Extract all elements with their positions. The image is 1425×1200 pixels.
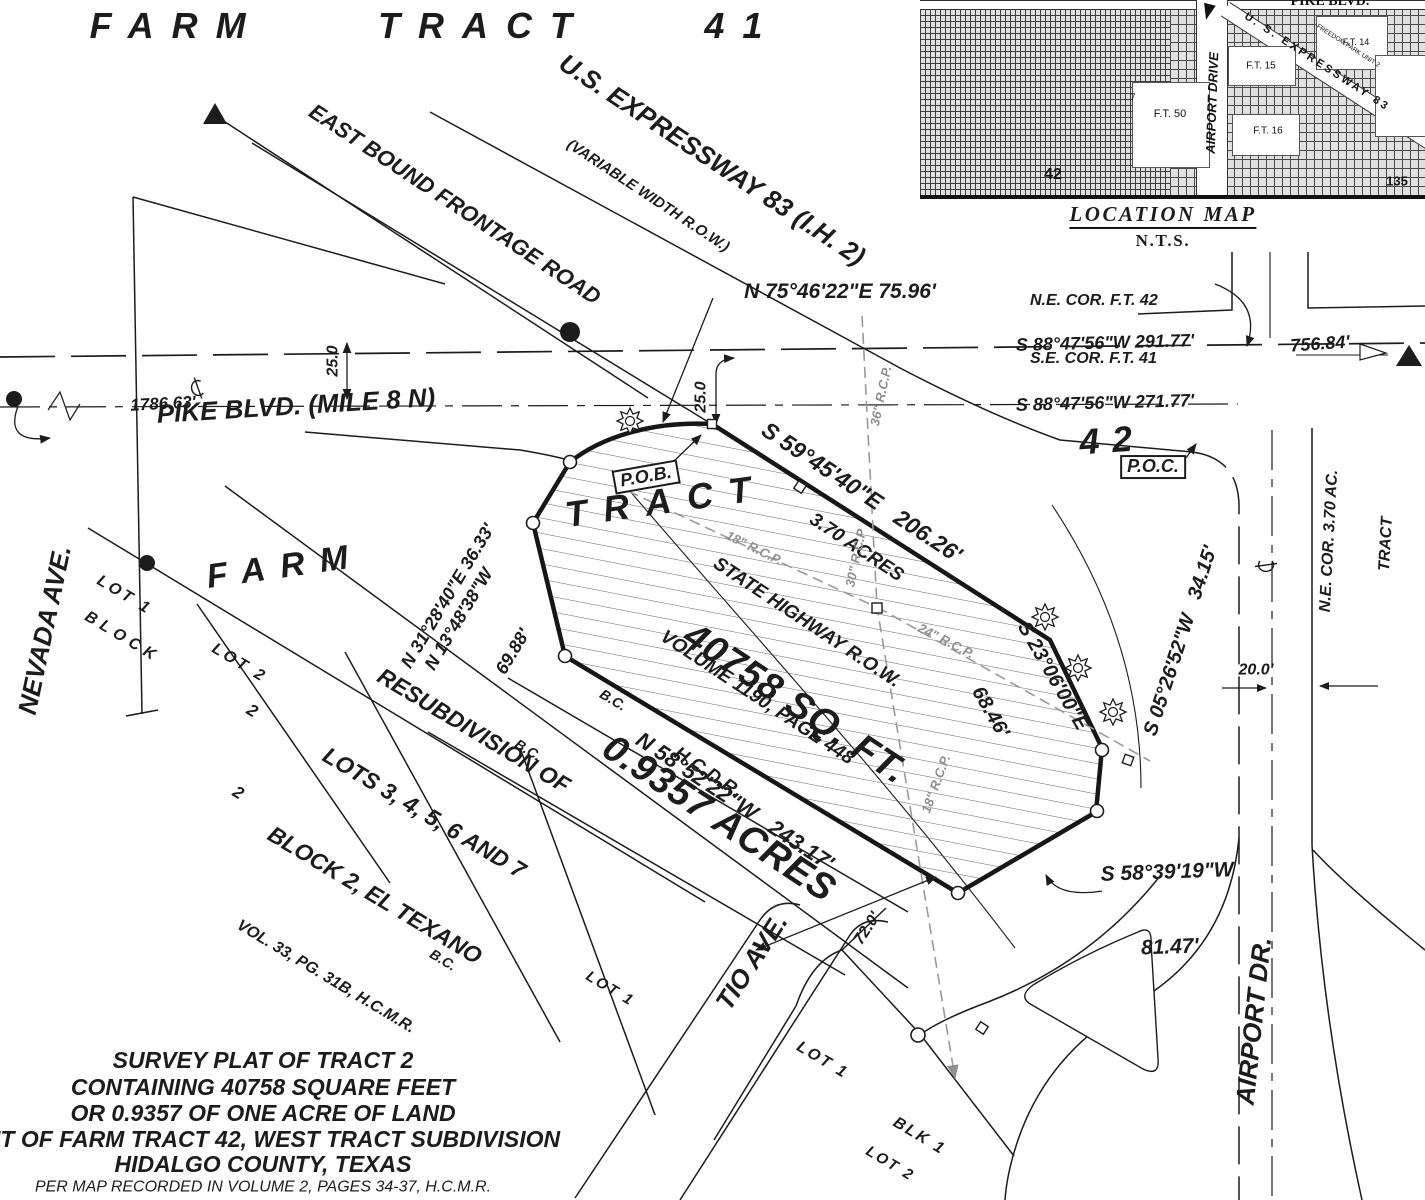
- farm-tract-41-title: FARM TRACT 41: [90, 7, 781, 45]
- map-42: 42: [1044, 166, 1062, 184]
- title-line2: CONTAINING 40758 SQUARE FEET: [71, 1075, 455, 1099]
- map-135: 135: [1386, 174, 1408, 189]
- title-line6: PER MAP RECORDED IN VOLUME 2, PAGES 34-3…: [35, 1180, 491, 1197]
- found-monument-dot: [560, 322, 580, 342]
- location-map-scale: N.T.S.: [1136, 232, 1191, 250]
- location-map-border: [920, 195, 1425, 199]
- dist-75684: 756.84': [1290, 333, 1351, 356]
- flag-marker: [1360, 344, 1386, 360]
- location-map-title: LOCATION MAP: [1069, 203, 1256, 229]
- map-ft14: F.T. 14: [1343, 37, 1370, 47]
- ne-cor-370-note: N.E. COR. 3.70 AC. TRACT: [1278, 467, 1418, 616]
- title-line1: SURVEY PLAT OF TRACT 2: [113, 1048, 414, 1072]
- map-7: 7: [1130, 92, 1135, 102]
- ne-cor-ft42: N.E. COR. F.T. 42: [1030, 291, 1158, 310]
- map-block-right: [1375, 55, 1425, 137]
- dist-8147: 81.47': [1103, 932, 1237, 962]
- sunburst-icon: [617, 408, 643, 434]
- ne-corner-note: N.E. COR. F.T. 42 S.E. COR. F.T. 41: [1030, 253, 1158, 387]
- dim-200: 20.0': [1239, 663, 1274, 680]
- control-monument-triangle: [203, 103, 227, 124]
- dim-25-right: 25.0: [694, 381, 711, 412]
- bearing-s230600: S 23°06'00"E: [1012, 618, 1093, 735]
- tract-42-number: 42: [1078, 419, 1146, 461]
- survey-plat-page: FARM TRACT 41 U.S. EXPRESSWAY 83 (I.H. 2…: [0, 0, 1425, 1200]
- map-ft16: F.T. 16: [1253, 126, 1282, 137]
- title-line3: OR 0.9357 OF ONE ACRE OF LAND: [70, 1101, 455, 1125]
- title-line4: OUT OF FARM TRACT 42, WEST TRACT SUBDIVI…: [0, 1127, 560, 1151]
- map-pike-blvd: PIKE BLVD.: [1291, 0, 1370, 10]
- found-monument-dot: [6, 391, 22, 407]
- bearing-s583919: S 58°39'19"W: [1100, 857, 1234, 887]
- map-block-ft50: [1132, 82, 1210, 168]
- ne-cor-370-tract: TRACT: [1373, 472, 1399, 615]
- dim-25-left: 25.0: [326, 345, 343, 376]
- control-monument-triangle: [1396, 345, 1422, 366]
- map-ft50: F.T. 50: [1154, 108, 1186, 120]
- title-line5: HIDALGO COUNTY, TEXAS: [115, 1152, 412, 1176]
- map-ft15: F.T. 15: [1246, 61, 1275, 72]
- ne-cor-370: N.E. COR. 3.70 AC.: [1316, 469, 1342, 612]
- bearing-n754622: N 75°46'22"E 75.96': [744, 281, 936, 303]
- location-map-inset: PIKE BLVD. U. S. EXPRESSWAY 83 AIRPORT D…: [920, 0, 1425, 196]
- centerline-icon: [1255, 561, 1277, 571]
- bearing-s583919-block: S 58°39'19"W 81.47': [1098, 807, 1237, 987]
- found-monument-dot: [139, 555, 155, 571]
